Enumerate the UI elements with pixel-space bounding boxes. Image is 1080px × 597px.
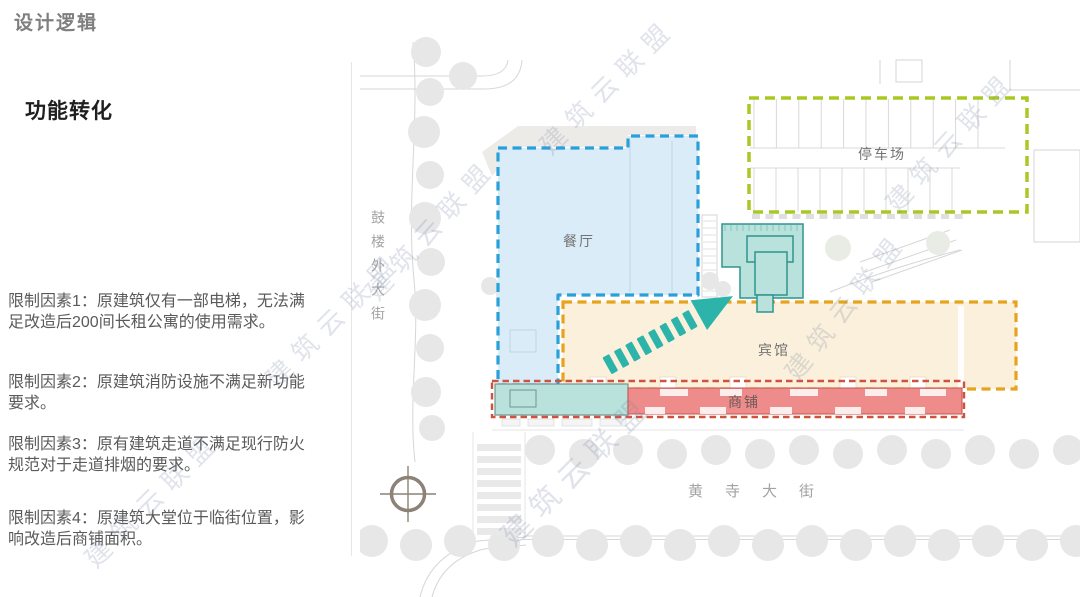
site-plan: 餐厅 停车场 宾馆 商铺 黄寺大街 鼓楼外大街 [360,0,1080,597]
street-label-west: 鼓楼外大街 [368,210,388,330]
page-title: 设计逻辑 [14,8,98,35]
site-plan-drawing [360,0,1080,597]
constraint-item-2: 限制因素2：原建筑消防设施不满足新功能要求。 [8,372,320,415]
section-title: 功能转化 [25,95,113,125]
street-label-south: 黄寺大街 [688,480,836,501]
new-core-building [722,224,803,312]
restaurant-zone-label: 餐厅 [563,231,595,251]
hotel-zone-label: 宾馆 [758,340,790,360]
panel-plan-divider [351,62,352,556]
crosswalk [477,444,521,535]
parking-zone-label: 停车场 [858,144,906,164]
north-compass [380,466,436,522]
constraint-item-3: 限制因素3：原有建筑走道不满足现行防火规范对于走道排烟的要求。 [8,434,320,477]
constraint-item-4: 限制因素4：原建筑大堂位于临街位置，影响改造后商铺面积。 [8,508,320,551]
design-logic-slide: 设计逻辑 功能转化 限制因素1：原建筑仅有一部电梯，无法满足改造后200间长租公… [0,0,1080,597]
constraint-item-1: 限制因素1：原建筑仅有一部电梯，无法满足改造后200间长租公寓的使用需求。 [8,291,320,334]
shops-zone-label: 商铺 [728,392,760,412]
